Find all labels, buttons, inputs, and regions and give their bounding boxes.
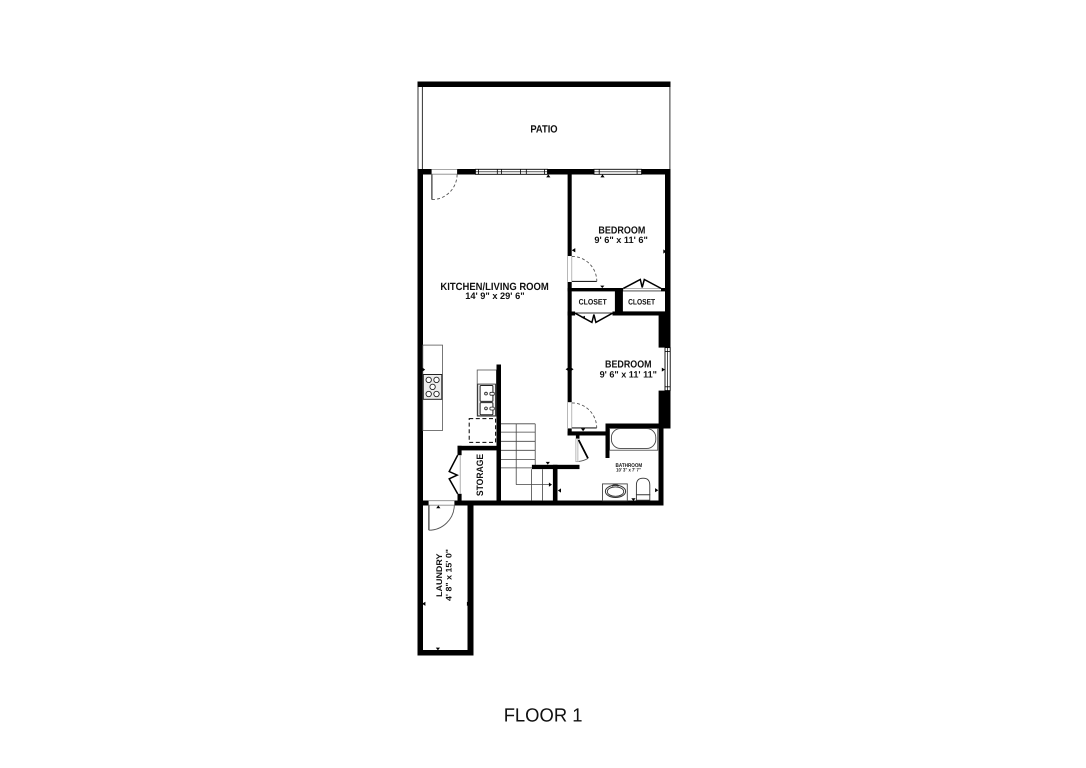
svg-text:FLOOR 1: FLOOR 1 <box>504 706 583 727</box>
svg-text:PATIO: PATIO <box>530 124 557 136</box>
svg-text:LAUNDRY: LAUNDRY <box>435 553 444 597</box>
svg-text:9' 6" x 11' 11": 9' 6" x 11' 11" <box>600 370 657 380</box>
svg-text:14' 9" x 29' 6": 14' 9" x 29' 6" <box>465 290 524 301</box>
svg-text:STORAGE: STORAGE <box>475 454 485 496</box>
svg-text:9' 6" x 11' 6": 9' 6" x 11' 6" <box>594 235 648 245</box>
svg-text:CLOSET: CLOSET <box>628 297 655 306</box>
svg-text:CLOSET: CLOSET <box>579 297 607 306</box>
svg-text:10' 3" x 7' 7": 10' 3" x 7' 7" <box>616 468 641 474</box>
svg-text:4' 8" x 15' 0": 4' 8" x 15' 0" <box>445 549 454 601</box>
